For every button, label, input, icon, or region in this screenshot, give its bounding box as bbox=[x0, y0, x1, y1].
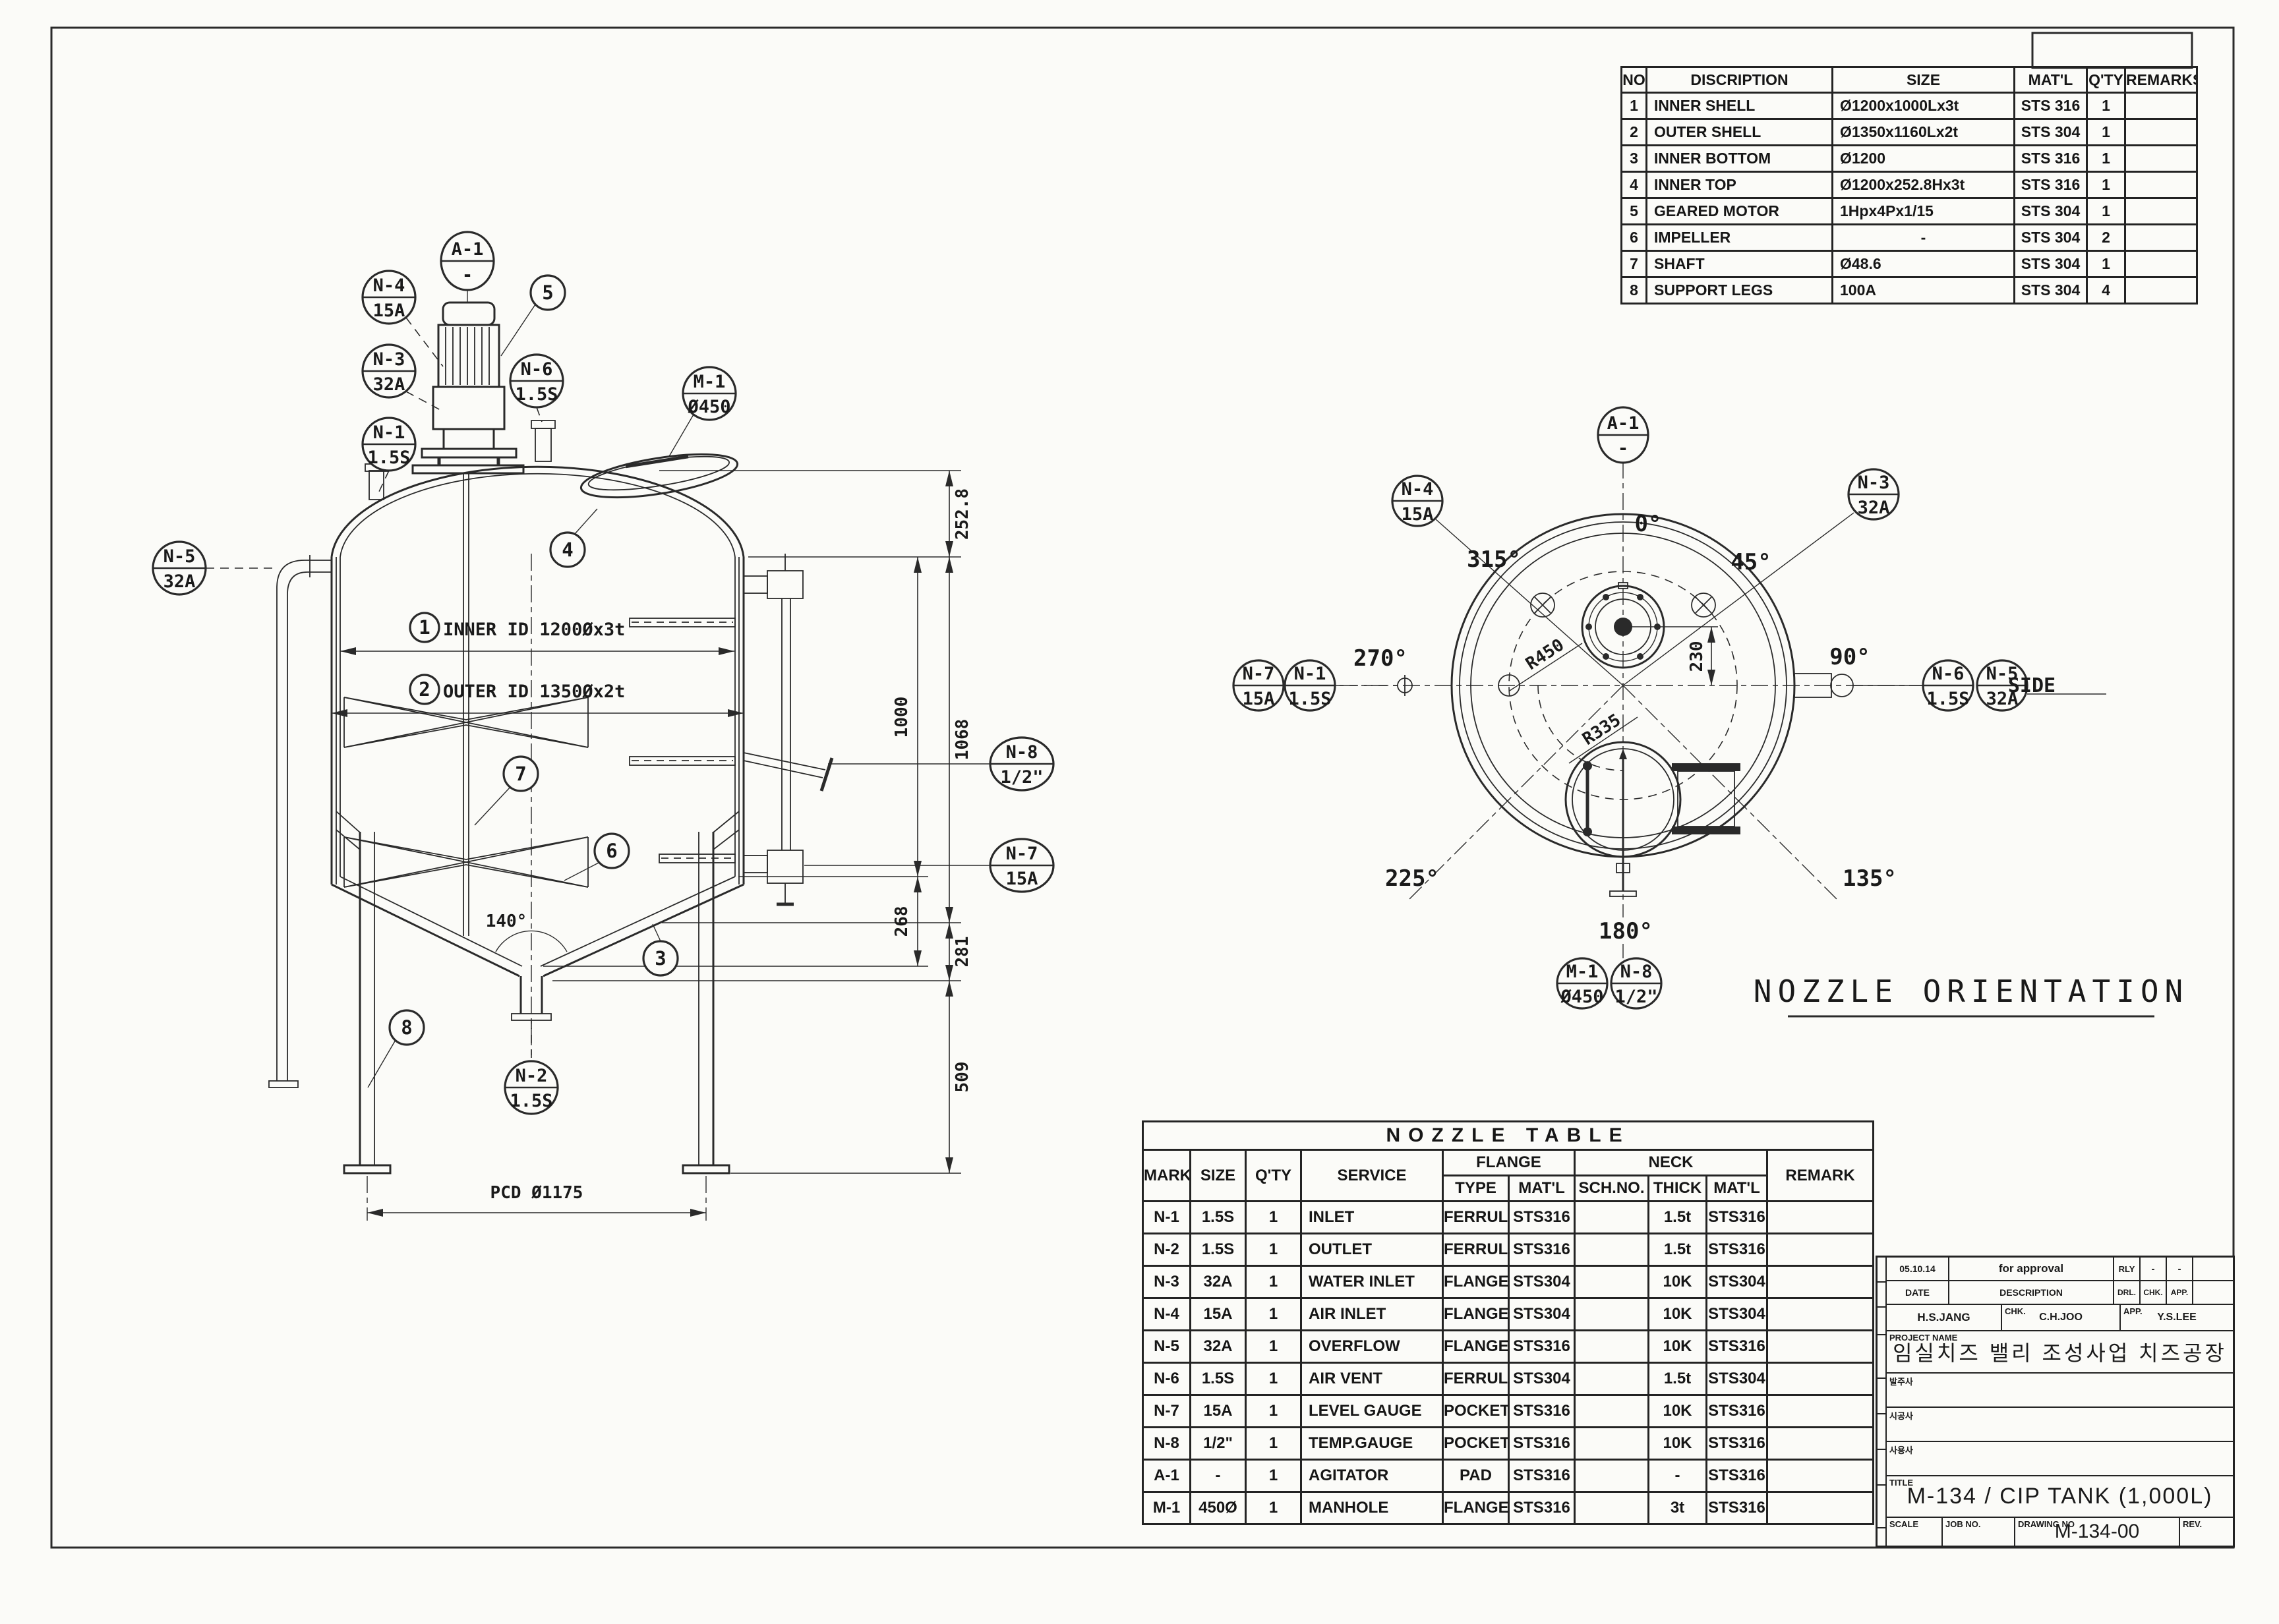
pockets bbox=[630, 618, 735, 863]
rev-date: 05.10.14 bbox=[1887, 1258, 1949, 1280]
approved-by: APP. Y.S.LEE bbox=[2121, 1305, 2233, 1330]
table-row: A-1-1AGITATORPADSTS316-STS316 bbox=[1143, 1460, 1874, 1492]
revision-row: 05.10.14 for approval RLY - - bbox=[1887, 1258, 2233, 1281]
balloon-a1: A-1 - bbox=[441, 232, 494, 290]
overflow-pipe bbox=[269, 555, 332, 1087]
nozzle-315 bbox=[1531, 593, 1554, 617]
svg-text:N-3: N-3 bbox=[1858, 473, 1890, 493]
balloon-n2: N-2 1.5S bbox=[505, 1061, 558, 1114]
part-balloon-6: 6 bbox=[595, 834, 629, 868]
svg-text:90°: 90° bbox=[1829, 644, 1870, 670]
balloon-n8: N-8 1/2" bbox=[990, 738, 1053, 790]
table-row: 3INNER BOTTOMØ1200STS 3161 bbox=[1622, 146, 2197, 172]
table-row: N-415A1AIR INLETFLANGESTS30410KSTS304 bbox=[1143, 1298, 1874, 1331]
o-balloon-n1: N-1 1.5S bbox=[1285, 660, 1335, 710]
svg-text:1.5S: 1.5S bbox=[1288, 689, 1331, 709]
svg-text:1.5S: 1.5S bbox=[1926, 689, 1969, 709]
svg-text:4: 4 bbox=[562, 538, 573, 561]
svg-text:R450: R450 bbox=[1522, 635, 1568, 674]
tank-shell bbox=[332, 467, 744, 1020]
svg-text:1/2": 1/2" bbox=[1614, 987, 1657, 1007]
table-row: 4INNER TOPØ1200x252.8Hx3tSTS 3161 bbox=[1622, 172, 2197, 198]
level-gauge bbox=[744, 554, 803, 904]
svg-text:Ø450: Ø450 bbox=[1560, 987, 1603, 1007]
angle-labels: 0° 45° 90° 135° 180° 225° 270° 315° bbox=[1353, 511, 1897, 944]
rev-description: for approval bbox=[1949, 1258, 2114, 1280]
svg-text:230: 230 bbox=[1687, 641, 1707, 672]
parts-table: NO DISCRIPTION SIZE MAT'L Q'TY REMARKS 1… bbox=[1620, 66, 2198, 304]
side-label: SIDE bbox=[2008, 674, 2056, 697]
svg-text:1000: 1000 bbox=[892, 697, 912, 738]
svg-text:15A: 15A bbox=[1402, 504, 1434, 525]
svg-text:N-6: N-6 bbox=[521, 359, 553, 380]
table-row: N-81/2"1TEMP.GAUGEPOCKETSTS31610KSTS316 bbox=[1143, 1428, 1874, 1460]
svg-text:PCD Ø1175: PCD Ø1175 bbox=[490, 1183, 583, 1203]
drawn-by: H.S.JANG bbox=[1887, 1305, 2002, 1330]
svg-text:OUTER ID 1350Øx2t: OUTER ID 1350Øx2t bbox=[443, 681, 625, 702]
drawing-sheet: INNER ID 1200Øx3t OUTER ID 1350Øx2t 252.… bbox=[0, 0, 2279, 1624]
o-balloon-m1: M-1 Ø450 bbox=[1557, 958, 1607, 1008]
manhole-plan bbox=[1566, 742, 1740, 896]
air-vent-fitting bbox=[531, 420, 555, 461]
svg-text:32A: 32A bbox=[1858, 498, 1890, 518]
svg-text:A-1: A-1 bbox=[452, 239, 484, 260]
svg-text:315°: 315° bbox=[1467, 546, 1521, 573]
balloon-n4: N-4 15A bbox=[363, 271, 415, 324]
support-legs bbox=[336, 811, 739, 1173]
table-row: N-532A1OVERFLOWFLANGESTS31610KSTS316 bbox=[1143, 1331, 1874, 1363]
orientation-view: 230 bbox=[1233, 407, 2189, 1016]
part-balloon-1: 1 bbox=[410, 613, 439, 642]
svg-text:45°: 45° bbox=[1731, 549, 1771, 575]
svg-text:Ø450: Ø450 bbox=[687, 397, 730, 417]
table-row: 8SUPPORT LEGS100ASTS 3044 bbox=[1622, 277, 2197, 304]
svg-text:NOZZLE ORIENTATION: NOZZLE ORIENTATION bbox=[1754, 973, 2189, 1009]
svg-text:8: 8 bbox=[401, 1016, 412, 1039]
impeller-upper bbox=[344, 697, 588, 747]
client-row: 발주사 bbox=[1887, 1374, 2233, 1408]
table-row: 5GEARED MOTOR1Hpx4Px1/15STS 3041 bbox=[1622, 198, 2197, 225]
part-balloon-5: 5 bbox=[531, 275, 565, 310]
table-row: M-1450Ø1MANHOLEFLANGESTS3163tSTS316 bbox=[1143, 1492, 1874, 1524]
nozzle-table-title: NOZZLE TABLE bbox=[1143, 1122, 1874, 1150]
orientation-title: NOZZLE ORIENTATION bbox=[1754, 973, 2189, 1016]
svg-text:N-2: N-2 bbox=[516, 1066, 548, 1086]
svg-text:INNER ID 1200Øx3t: INNER ID 1200Øx3t bbox=[443, 620, 625, 640]
table-row: 6IMPELLER-STS 3042 bbox=[1622, 225, 2197, 251]
svg-text:281: 281 bbox=[953, 937, 972, 968]
drawing-title-row: TITLE M-134 / CIP TANK (1,000L) bbox=[1887, 1476, 2233, 1518]
svg-text:N-1: N-1 bbox=[373, 422, 405, 443]
svg-text:N-7: N-7 bbox=[1006, 844, 1038, 864]
svg-text:R335: R335 bbox=[1579, 710, 1624, 749]
nozzle-header-row1: MARK SIZE Q'TY SERVICE FLANGE NECK REMAR… bbox=[1143, 1150, 1874, 1176]
balloon-n1: N-1 1.5S bbox=[363, 418, 415, 471]
svg-text:N-4: N-4 bbox=[373, 275, 405, 296]
svg-text:-: - bbox=[462, 265, 473, 285]
o-balloon-n4: N-4 15A bbox=[1392, 476, 1442, 526]
svg-text:N-8: N-8 bbox=[1620, 962, 1653, 982]
svg-text:225°: 225° bbox=[1385, 865, 1439, 892]
svg-text:270°: 270° bbox=[1353, 645, 1407, 672]
part-balloon-8: 8 bbox=[390, 1010, 424, 1045]
scale-row: SCALE JOB NO. DRAWING NO M-134-00 REV. bbox=[1887, 1518, 2233, 1546]
part-balloon-4: 4 bbox=[550, 533, 585, 567]
col-size: SIZE bbox=[1833, 67, 2015, 93]
svg-text:N-6: N-6 bbox=[1932, 664, 1965, 684]
col-matl: MAT'L bbox=[2015, 67, 2087, 93]
svg-text:140°: 140° bbox=[486, 912, 527, 931]
nozzle-90-stub bbox=[1794, 674, 1923, 697]
svg-text:32A: 32A bbox=[373, 374, 405, 395]
geared-motor bbox=[413, 303, 523, 473]
title-block: 05.10.14 for approval RLY - - DATE DESCR… bbox=[1876, 1256, 2235, 1548]
svg-text:135°: 135° bbox=[1843, 865, 1897, 892]
svg-text:32A: 32A bbox=[163, 571, 196, 592]
balloon-n6: N-6 1.5S bbox=[510, 355, 563, 407]
manhole-cover bbox=[578, 446, 740, 506]
svg-text:1068: 1068 bbox=[953, 719, 972, 761]
svg-text:0°: 0° bbox=[1635, 511, 1662, 537]
title-block-edge-strip bbox=[1878, 1258, 1887, 1546]
nozzle-45 bbox=[1692, 593, 1715, 617]
drawing-title: M-134 / CIP TANK (1,000L) bbox=[1887, 1476, 2233, 1517]
o-balloon-n6: N-6 1.5S bbox=[1923, 660, 1973, 710]
table-row: 7SHAFTØ48.6STS 3041 bbox=[1622, 251, 2197, 277]
revision-box bbox=[2032, 33, 2192, 68]
signatures-row: H.S.JANG CHK. C.H.JOO APP. Y.S.LEE bbox=[1887, 1305, 2233, 1331]
svg-text:252.8: 252.8 bbox=[953, 488, 972, 540]
svg-text:N-8: N-8 bbox=[1006, 742, 1038, 763]
svg-text:509: 509 bbox=[953, 1062, 972, 1093]
o-balloon-n8: N-8 1/2" bbox=[1611, 958, 1661, 1008]
col-qty: Q'TY bbox=[2087, 67, 2125, 93]
svg-text:N-7: N-7 bbox=[1243, 664, 1275, 684]
svg-text:N-3: N-3 bbox=[373, 349, 405, 370]
svg-text:N-5: N-5 bbox=[163, 546, 196, 567]
svg-text:N-4: N-4 bbox=[1402, 479, 1434, 500]
nozzle-table: NOZZLE TABLE MARK SIZE Q'TY SERVICE FLAN… bbox=[1142, 1120, 1874, 1525]
o-balloon-a1: A-1 - bbox=[1598, 407, 1648, 463]
svg-text:15A: 15A bbox=[1006, 869, 1038, 889]
checked-by: CHK. C.H.JOO bbox=[2002, 1305, 2121, 1330]
col-discription: DISCRIPTION bbox=[1647, 67, 1833, 93]
part-balloon-3: 3 bbox=[643, 941, 678, 975]
constructor-row: 시공사 bbox=[1887, 1408, 2233, 1442]
svg-text:2: 2 bbox=[419, 678, 430, 701]
svg-text:1.5S: 1.5S bbox=[515, 384, 558, 405]
part-balloon-7: 7 bbox=[504, 757, 538, 791]
col-no: NO bbox=[1622, 67, 1647, 93]
svg-text:180°: 180° bbox=[1599, 918, 1653, 944]
part-balloon-2: 2 bbox=[410, 675, 439, 704]
svg-text:3: 3 bbox=[655, 947, 666, 970]
balloon-n5: N-5 32A bbox=[153, 542, 206, 594]
table-row: 2OUTER SHELLØ1350x1160Lx2tSTS 3041 bbox=[1622, 119, 2197, 146]
parts-header-row: NO DISCRIPTION SIZE MAT'L Q'TY REMARKS bbox=[1622, 67, 2197, 93]
table-row: N-11.5S1INLETFERRULESTS3161.5tSTS316 bbox=[1143, 1202, 1874, 1234]
temp-gauge bbox=[744, 753, 832, 791]
svg-text:5: 5 bbox=[542, 281, 553, 304]
dimensions: 252.8 1000 1068 268 281 509 PCD Ø1175 14… bbox=[367, 471, 972, 1221]
svg-text:1/2": 1/2" bbox=[1000, 767, 1043, 788]
o-balloon-n3: N-3 32A bbox=[1849, 469, 1899, 519]
table-row: N-21.5S1OUTLETFERRULESTS3161.5tSTS316 bbox=[1143, 1234, 1874, 1266]
svg-text:A-1: A-1 bbox=[1607, 413, 1640, 434]
balloon-n7: N-7 15A bbox=[990, 839, 1053, 892]
impeller-lower bbox=[344, 837, 588, 887]
table-row: N-61.5S1AIR VENTFERRULESTS3041.5tSTS304 bbox=[1143, 1363, 1874, 1395]
table-row: N-332A1WATER INLETFLANGESTS30410KSTS304 bbox=[1143, 1266, 1874, 1298]
svg-text:7: 7 bbox=[515, 763, 526, 785]
svg-text:-: - bbox=[1618, 438, 1628, 459]
svg-text:6: 6 bbox=[606, 840, 617, 862]
col-remarks: REMARKS bbox=[2125, 67, 2197, 93]
o-balloon-n7: N-7 15A bbox=[1233, 660, 1284, 710]
balloon-n3: N-3 32A bbox=[363, 345, 415, 397]
revision-label-row: DATE DESCRIPTION DRL. CHK. APP. bbox=[1887, 1281, 2233, 1305]
user-row: 사용사 bbox=[1887, 1442, 2233, 1476]
svg-text:1.5S: 1.5S bbox=[367, 448, 410, 468]
svg-text:N-1: N-1 bbox=[1294, 664, 1326, 684]
elevation-view: INNER ID 1200Øx3t OUTER ID 1350Øx2t 252.… bbox=[153, 232, 1053, 1221]
project-row: PROJECT NAME 임실치즈 밸리 조성사업 치즈공장 bbox=[1887, 1331, 2233, 1374]
svg-text:1: 1 bbox=[419, 616, 430, 639]
id-callouts: INNER ID 1200Øx3t OUTER ID 1350Øx2t bbox=[332, 620, 744, 713]
svg-text:15A: 15A bbox=[373, 301, 405, 321]
balloon-m1: M-1 Ø450 bbox=[683, 367, 736, 420]
svg-text:15A: 15A bbox=[1243, 689, 1275, 709]
svg-text:268: 268 bbox=[892, 906, 912, 937]
table-row: 1INNER SHELLØ1200x1000Lx3tSTS 3161 bbox=[1622, 93, 2197, 119]
table-row: N-715A1LEVEL GAUGEPOCKETSTS31610KSTS316 bbox=[1143, 1395, 1874, 1428]
svg-text:1.5S: 1.5S bbox=[510, 1091, 552, 1111]
svg-text:M-1: M-1 bbox=[694, 372, 726, 392]
svg-text:M-1: M-1 bbox=[1566, 962, 1599, 982]
